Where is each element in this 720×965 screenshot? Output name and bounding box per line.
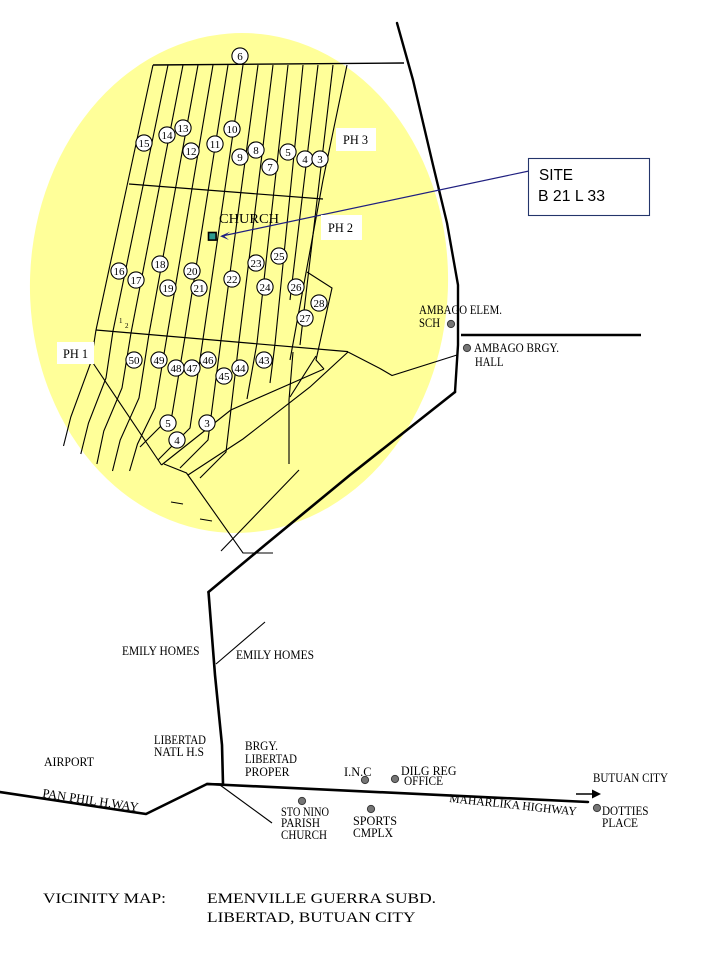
svg-text:AMBAGO BRGY.: AMBAGO BRGY.: [474, 340, 559, 355]
svg-text:13: 13: [178, 123, 190, 135]
svg-text:7: 7: [267, 162, 273, 174]
svg-text:OFFICE: OFFICE: [404, 773, 443, 788]
svg-text:6: 6: [237, 51, 243, 63]
svg-text:HALL: HALL: [475, 354, 504, 369]
svg-text:27: 27: [300, 313, 312, 325]
svg-text:PROPER: PROPER: [245, 764, 290, 779]
svg-text:9: 9: [237, 152, 243, 164]
svg-text:PH 3: PH 3: [343, 133, 368, 147]
svg-text:8: 8: [253, 145, 259, 157]
svg-text:5: 5: [285, 147, 291, 159]
svg-text:14: 14: [162, 130, 174, 142]
svg-text:11: 11: [210, 139, 221, 151]
svg-text:23: 23: [251, 258, 263, 270]
svg-text:22: 22: [227, 274, 238, 286]
svg-text:5: 5: [165, 418, 171, 430]
svg-text:12: 12: [186, 146, 197, 158]
svg-text:45: 45: [219, 371, 231, 383]
svg-text:SITE: SITE: [539, 167, 573, 184]
svg-text:20: 20: [187, 266, 199, 278]
svg-text:49: 49: [154, 355, 166, 367]
svg-text:PAN PHIL H.WAY: PAN PHIL H.WAY: [42, 786, 140, 814]
svg-text:PLACE: PLACE: [602, 815, 638, 830]
svg-text:19: 19: [163, 283, 175, 295]
svg-text:4: 4: [174, 435, 180, 447]
svg-text:AIRPORT: AIRPORT: [44, 754, 94, 769]
svg-text:PH 1: PH 1: [63, 347, 88, 361]
svg-text:16: 16: [114, 266, 126, 278]
svg-text:BUTUAN CITY: BUTUAN CITY: [593, 770, 669, 785]
svg-text:28: 28: [314, 298, 326, 310]
svg-text:SCH: SCH: [419, 315, 440, 330]
svg-text:44: 44: [235, 363, 247, 375]
svg-text:MAHARLIKA HIGHWAY: MAHARLIKA HIGHWAY: [449, 791, 578, 818]
svg-text:I.N.C: I.N.C: [344, 764, 372, 779]
svg-text:EMENVILLE GUERRA SUBD.: EMENVILLE GUERRA SUBD.: [207, 891, 436, 907]
svg-text:21: 21: [194, 283, 205, 295]
svg-text:15: 15: [139, 138, 151, 150]
svg-text:26: 26: [291, 282, 303, 294]
svg-text:48: 48: [171, 363, 183, 375]
svg-text:50: 50: [129, 355, 141, 367]
svg-text:CHURCH: CHURCH: [281, 827, 327, 842]
svg-text:4: 4: [302, 154, 308, 166]
svg-text:18: 18: [155, 259, 167, 271]
svg-text:PH 2: PH 2: [328, 221, 353, 235]
svg-text:EMILY HOMES: EMILY HOMES: [122, 643, 200, 658]
svg-text:CMPLX: CMPLX: [353, 825, 394, 840]
svg-text:LIBERTAD, BUTUAN CITY: LIBERTAD, BUTUAN CITY: [207, 910, 416, 926]
svg-text:46: 46: [203, 355, 215, 367]
svg-text:47: 47: [187, 363, 199, 375]
svg-text:3: 3: [204, 418, 210, 430]
svg-text:B 21 L 33: B 21 L 33: [538, 188, 605, 205]
svg-text:43: 43: [259, 355, 271, 367]
svg-text:10: 10: [227, 124, 239, 136]
svg-text:EMILY HOMES: EMILY HOMES: [236, 647, 314, 662]
svg-text:1: 1: [119, 317, 123, 325]
svg-text:NATL H.S: NATL H.S: [154, 744, 204, 759]
svg-text:VICINITY MAP:: VICINITY MAP:: [43, 891, 166, 907]
svg-text:24: 24: [260, 282, 272, 294]
svg-text:17: 17: [131, 275, 143, 287]
svg-text:3: 3: [317, 154, 323, 166]
svg-text:2: 2: [125, 322, 129, 330]
svg-text:25: 25: [274, 251, 286, 263]
svg-text:CHURCH: CHURCH: [219, 211, 279, 226]
